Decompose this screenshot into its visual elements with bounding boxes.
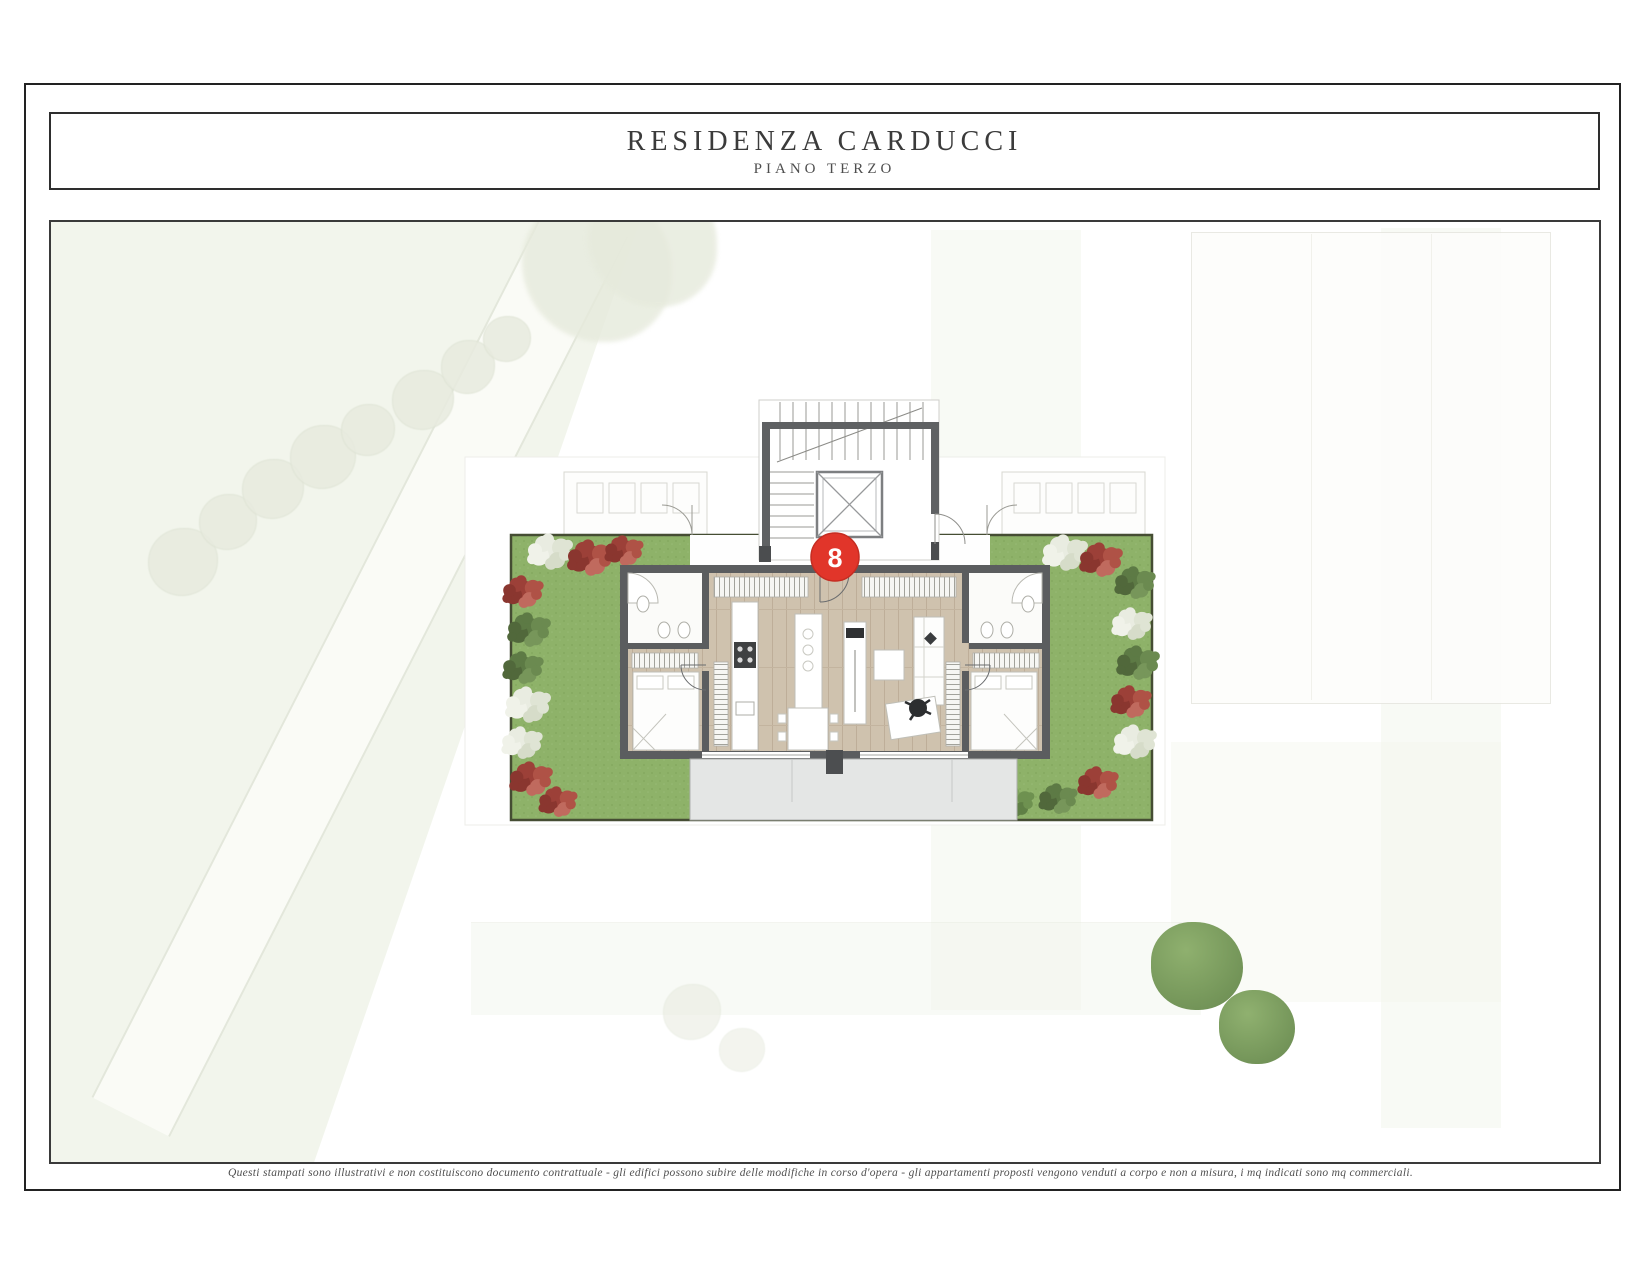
bush-blob (527, 554, 537, 564)
bush-blob (523, 711, 535, 723)
bush-blob (585, 564, 597, 576)
bush-blob (604, 553, 613, 562)
bush-blob (501, 745, 510, 754)
stove (734, 642, 756, 668)
ghost-tree (663, 984, 721, 1040)
bush-blob (1128, 629, 1139, 640)
bush-blob (535, 657, 544, 666)
bush-blob (515, 726, 526, 737)
bush-blob (540, 776, 551, 787)
media-unit (844, 622, 866, 724)
bush-blob (567, 560, 577, 570)
site-plan-area: 8 (49, 220, 1601, 1164)
bush-blob (566, 799, 576, 809)
bush-blob (1023, 799, 1033, 809)
bush-blob (538, 804, 547, 813)
bush-blob (1054, 804, 1064, 814)
page-title: RESIDENZA CARDUCCI (51, 126, 1598, 158)
bush-blob (538, 627, 549, 638)
bush-blob (1113, 548, 1123, 558)
bush-blob (1079, 562, 1089, 572)
bush-blob (1147, 660, 1158, 671)
bathroom-right (969, 573, 1042, 643)
bush-blob (1038, 801, 1047, 810)
bush-blob (542, 533, 554, 545)
threshold (826, 750, 843, 774)
apartment-unit-8 (620, 565, 1050, 759)
garden-tree (1151, 922, 1243, 1010)
coffee-table (874, 650, 904, 680)
bush-blob (1127, 724, 1138, 735)
bush-blob (519, 597, 530, 608)
bush-blob (521, 612, 532, 623)
bush-blob (1077, 785, 1086, 794)
title-box: RESIDENZA CARDUCCI PIANO TERZO (49, 112, 1600, 190)
bush-blob (530, 740, 541, 751)
neighbour-wing-left (564, 472, 707, 535)
bush-blob (1110, 772, 1119, 781)
bush-blob (1124, 685, 1135, 696)
toilet (637, 596, 649, 612)
bush-blob (1111, 626, 1120, 635)
bush-blob (1127, 707, 1138, 718)
bush-blob (518, 748, 529, 759)
bush-blob (1096, 565, 1107, 576)
bush-blob (620, 556, 630, 566)
bush-blob (537, 702, 549, 714)
bush-blob (1133, 668, 1144, 679)
bush-blob (1057, 534, 1069, 546)
bush-blob (543, 767, 553, 777)
terrace (690, 750, 1017, 820)
bush-blob (1110, 704, 1119, 713)
bush-blob (1078, 541, 1088, 551)
bathroom-left (628, 573, 702, 643)
bush-blob (569, 792, 578, 801)
ghost-tree (719, 1028, 765, 1072)
bush-blob (523, 761, 534, 772)
sink (1001, 622, 1013, 638)
ghost-building-line (1431, 234, 1432, 700)
bush-blob (1144, 739, 1155, 750)
bush-blob (1093, 542, 1104, 553)
bush-blob (1125, 607, 1136, 618)
kitchen-sink (736, 702, 754, 715)
bush-blob (531, 589, 542, 600)
bush-blob (1069, 789, 1078, 798)
bush-blob (1130, 747, 1141, 758)
bush-blob (1110, 557, 1121, 568)
bush-blob (1147, 730, 1157, 740)
sofa (914, 617, 944, 705)
bush-blob (582, 539, 594, 551)
unit-8-badge[interactable]: 8 (811, 533, 859, 581)
bush-blob (1106, 780, 1117, 791)
bush-blob (1091, 766, 1102, 777)
bush-blob (1026, 792, 1034, 800)
bush-blob (1140, 621, 1151, 632)
bush-blob (632, 548, 642, 558)
sink (658, 622, 670, 638)
bush-blob (516, 575, 527, 586)
bush-blob (1060, 559, 1072, 571)
bush-blob (1051, 783, 1061, 793)
desk-area (885, 696, 940, 739)
bush-blob (516, 651, 527, 662)
bush-blob (554, 807, 564, 817)
bush-blob (635, 541, 644, 550)
floor-plan-sheet: RESIDENZA CARDUCCI PIANO TERZO (0, 0, 1649, 1275)
bush-blob (1150, 651, 1160, 661)
tv (846, 628, 864, 638)
bush-blob (524, 635, 535, 646)
neighbour-wing-right (1002, 472, 1145, 535)
bush-blob (502, 670, 511, 679)
bush-blob (1143, 580, 1154, 591)
bush-blob (507, 632, 517, 642)
sink (981, 622, 993, 638)
disclaimer-text: Questi stampati sono illustrativi e non … (24, 1167, 1617, 1179)
bush-blob (1147, 572, 1156, 581)
bush-blob (541, 618, 551, 628)
bush-blob (617, 535, 627, 545)
elevator (817, 472, 882, 537)
bush-blob (1128, 566, 1139, 577)
bush-blob (1131, 588, 1142, 599)
bush-blob (1143, 691, 1152, 700)
toilet (1022, 596, 1034, 612)
bush-blob (520, 686, 532, 698)
bush-blob (505, 707, 515, 717)
bush-blob (541, 693, 551, 703)
garden-tree (1219, 990, 1295, 1064)
bush-blob (531, 665, 542, 676)
stair-core (759, 400, 965, 562)
ghost-paving-band (471, 922, 1201, 1015)
bush-blob (502, 594, 511, 603)
bush-blob (534, 732, 543, 741)
ghost-building-outline (1191, 232, 1551, 704)
bush-blob (1116, 665, 1126, 675)
bush-blob (1066, 796, 1076, 806)
bush-blob (526, 784, 537, 795)
bush-blob (519, 673, 530, 684)
bush-blob (1094, 788, 1105, 799)
bush-blob (1113, 744, 1123, 754)
sink (678, 622, 690, 638)
ghost-building-line (1311, 234, 1312, 700)
apartment-plan: 8 (462, 387, 1167, 837)
bush-blob (1139, 699, 1150, 710)
bush-blob (1114, 585, 1123, 594)
bush-blob (1130, 645, 1141, 656)
bush-blob (563, 540, 573, 550)
bush-blob (1144, 613, 1153, 622)
bush-blob (535, 581, 544, 590)
unit-badge-number: 8 (827, 543, 842, 573)
bush-blob (551, 786, 561, 796)
bush-blob (545, 558, 557, 570)
page-subtitle: PIANO TERZO (51, 161, 1598, 178)
bush-blob (1042, 555, 1052, 565)
bush-blob (509, 781, 519, 791)
